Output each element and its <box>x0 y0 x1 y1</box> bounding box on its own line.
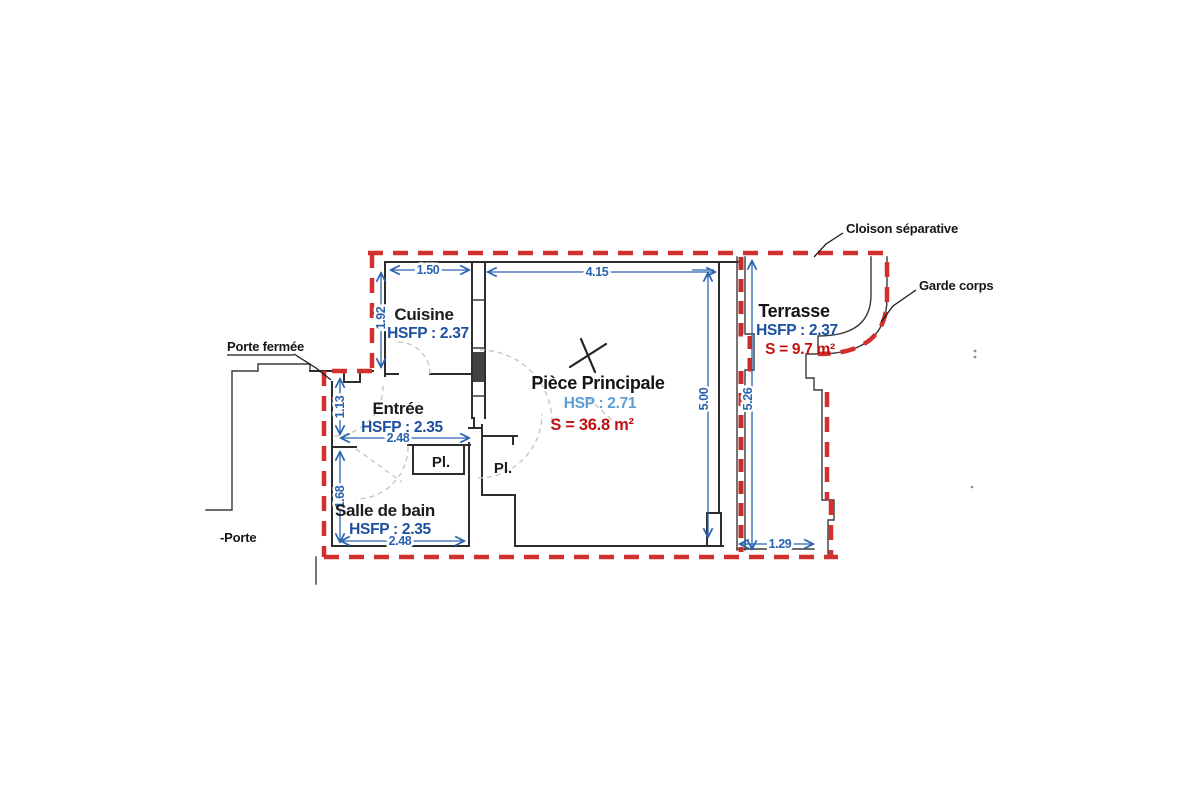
surface-terrasse: S = 9.7 m² <box>765 341 835 358</box>
room-label-piece-principale: Pièce Principale <box>531 373 665 393</box>
dim-label-terrasse-height: 5.26 <box>741 387 755 410</box>
hsfp-entree: HSFP : 2.35 <box>361 419 443 436</box>
surface-piece-principale: S = 36.8 m² <box>550 416 634 434</box>
dim-label-cuisine-height: 1.92 <box>374 306 388 329</box>
callout-cloison-separative: Cloison séparative <box>846 221 958 236</box>
callout-garde-corps: Garde corps <box>919 278 993 293</box>
wall-cuisine-main-double <box>472 262 485 418</box>
scan-specks <box>971 350 977 489</box>
dim-label-cuisine-width: 1.50 <box>417 263 440 277</box>
duct <box>707 513 721 546</box>
floor-plan: 1.50 4.15 1.92 1.13 2.48 1.68 2.48 5.00 … <box>0 0 1200 800</box>
wall-bain-top <box>332 445 470 447</box>
dim-label-piece-width: 4.15 <box>586 265 609 279</box>
closet2-label: Pl. <box>494 460 512 477</box>
corridor-outline <box>206 364 316 584</box>
room-labels: Cuisine HSFP : 2.37 Entrée HSFP : 2.35 S… <box>335 301 838 538</box>
room-label-cuisine: Cuisine <box>394 305 453 324</box>
dim-label-piece-height: 5.00 <box>697 387 711 410</box>
hsp-piece-principale: HSP : 2.71 <box>564 395 637 412</box>
dim-label-entree-height: 1.13 <box>333 395 347 418</box>
wall-poche <box>473 352 484 382</box>
cuisine-door-arc <box>398 342 430 374</box>
room-label-salle-de-bain: Salle de bain <box>335 501 435 520</box>
room-label-terrasse: Terrasse <box>758 301 830 321</box>
hsfp-salle-de-bain: HSFP : 2.35 <box>349 521 431 538</box>
center-cross-mark <box>570 339 606 372</box>
dim-label-terrasse-width: 1.29 <box>769 537 792 551</box>
callout-porte: -Porte <box>220 530 256 545</box>
closet2-outline <box>469 418 517 546</box>
closet1-label: Pl. <box>432 454 450 471</box>
scanned-floor-plan-page: 1.50 4.15 1.92 1.13 2.48 1.68 2.48 5.00 … <box>0 0 1200 800</box>
hsfp-cuisine: HSFP : 2.37 <box>387 325 469 342</box>
leader-porte-fermee <box>227 354 331 380</box>
corridor-walls <box>206 364 310 510</box>
room-label-entree: Entrée <box>372 399 423 418</box>
bain-door-arc <box>356 447 408 499</box>
hsfp-terrasse: HSFP : 2.37 <box>756 322 838 339</box>
callout-porte-fermee: Porte fermée <box>227 339 304 354</box>
